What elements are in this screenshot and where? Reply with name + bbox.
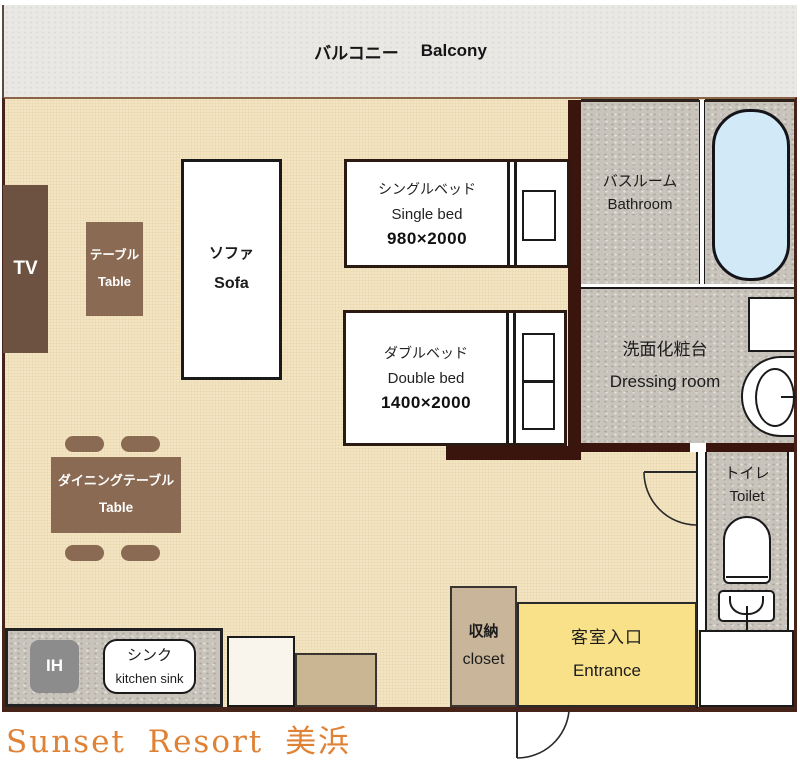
ih-label: IH bbox=[46, 653, 63, 679]
toilet-label-ja: トイレ bbox=[724, 462, 769, 485]
dining-chair bbox=[65, 436, 104, 452]
dining-chair bbox=[121, 545, 160, 561]
fridge-unit bbox=[227, 636, 295, 707]
balcony-label: バルコニー Balcony bbox=[4, 5, 797, 97]
small-table: テーブル Table bbox=[86, 222, 143, 316]
toilet-bowl bbox=[723, 516, 771, 584]
small-table-label-ja: テーブル bbox=[90, 246, 139, 265]
bathroom-label-ja: バスルーム bbox=[603, 170, 678, 193]
kitchen-sink-label-en: kitchen sink bbox=[116, 669, 184, 689]
toilet-seat-line bbox=[726, 576, 768, 578]
balcony-area: バルコニー Balcony bbox=[2, 5, 797, 97]
toilet-right-gutter bbox=[789, 452, 794, 630]
entrance-label-ja: 客室入口 bbox=[571, 625, 643, 651]
double-bed-pillow-top bbox=[522, 333, 555, 382]
sofa: ソファ Sofa bbox=[181, 159, 282, 380]
single-bed: シングルベッド Single bed 980×2000 bbox=[344, 159, 570, 268]
balcony-label-en: Balcony bbox=[421, 41, 487, 61]
entrance-door-arc bbox=[517, 711, 569, 758]
dining-chair bbox=[65, 545, 104, 561]
ih-cooktop: IH bbox=[30, 640, 79, 693]
bedroom-right-wall bbox=[568, 100, 581, 460]
single-bed-headboard-line bbox=[507, 162, 517, 265]
dressing-label-en: Dressing room bbox=[610, 369, 721, 395]
bathtub bbox=[712, 109, 790, 281]
tv-unit: TV bbox=[3, 185, 48, 353]
dressing-label-ja: 洗面化粧台 bbox=[623, 337, 708, 363]
balcony-label-ja: バルコニー bbox=[314, 39, 399, 64]
toilet-label-en: Toilet bbox=[729, 485, 764, 508]
dressing-room: 洗面化粧台 Dressing room bbox=[581, 289, 794, 443]
single-bed-label-ja: シングルベッド bbox=[378, 179, 476, 199]
dining-chair bbox=[121, 436, 160, 452]
double-bed-pillow-bottom bbox=[522, 381, 555, 430]
dressing-bottom-wall bbox=[581, 443, 794, 452]
entrance-area: 客室入口 Entrance bbox=[517, 602, 697, 707]
entry-alcove bbox=[699, 630, 794, 707]
toilet-door-gap bbox=[690, 443, 706, 452]
bathroom-room: バスルーム Bathroom bbox=[581, 99, 699, 284]
sofa-label-en: Sofa bbox=[214, 272, 249, 297]
toilet-flush-line bbox=[746, 606, 748, 630]
vanity-counter bbox=[748, 297, 794, 352]
closet-label-ja: 収納 bbox=[468, 620, 498, 643]
double-bed-label-en: Double bed bbox=[388, 370, 465, 387]
corridor-wall-white bbox=[698, 452, 705, 630]
closet-label-en: closet bbox=[463, 648, 505, 673]
bedroom-bottom-wall bbox=[446, 446, 581, 460]
toilet-tank bbox=[718, 590, 775, 622]
small-table-label-en: Table bbox=[98, 272, 131, 292]
double-bed-size: 1400×2000 bbox=[381, 393, 471, 413]
kitchen-counter: IH シンク kitchen sink bbox=[5, 628, 223, 707]
double-bed-headboard-line bbox=[506, 313, 516, 443]
bathtub-room bbox=[705, 99, 794, 284]
single-bed-pillow bbox=[522, 190, 556, 241]
dining-table: ダイニングテーブル Table bbox=[51, 457, 181, 533]
toilet-room: トイレ Toilet bbox=[705, 452, 787, 630]
double-bed-label-ja: ダブルベッド bbox=[384, 343, 468, 363]
double-bed: ダブルベッド Double bed 1400×2000 bbox=[343, 310, 567, 446]
tv-label: TV bbox=[13, 254, 37, 283]
entrance-label-en: Entrance bbox=[573, 658, 641, 684]
kitchen-sink-label-ja: シンク bbox=[127, 644, 172, 667]
kitchen-sink: シンク kitchen sink bbox=[103, 639, 196, 694]
counter-extension bbox=[295, 653, 377, 707]
floor-plan: バルコニー Balcony バスルーム Bathroom 洗面化粧台 Dress… bbox=[0, 0, 800, 768]
sofa-label-ja: ソファ bbox=[209, 242, 254, 265]
single-bed-size: 980×2000 bbox=[387, 229, 467, 249]
resort-title: Sunset Resort 美浜 bbox=[6, 716, 351, 761]
closet: 収納 closet bbox=[450, 586, 517, 707]
single-bed-label-en: Single bed bbox=[392, 206, 463, 223]
dining-table-label-en: Table bbox=[99, 498, 133, 519]
washbasin-faucet bbox=[781, 396, 796, 398]
bathroom-label-en: Bathroom bbox=[607, 193, 672, 216]
dining-table-label-ja: ダイニングテーブル bbox=[58, 471, 174, 491]
